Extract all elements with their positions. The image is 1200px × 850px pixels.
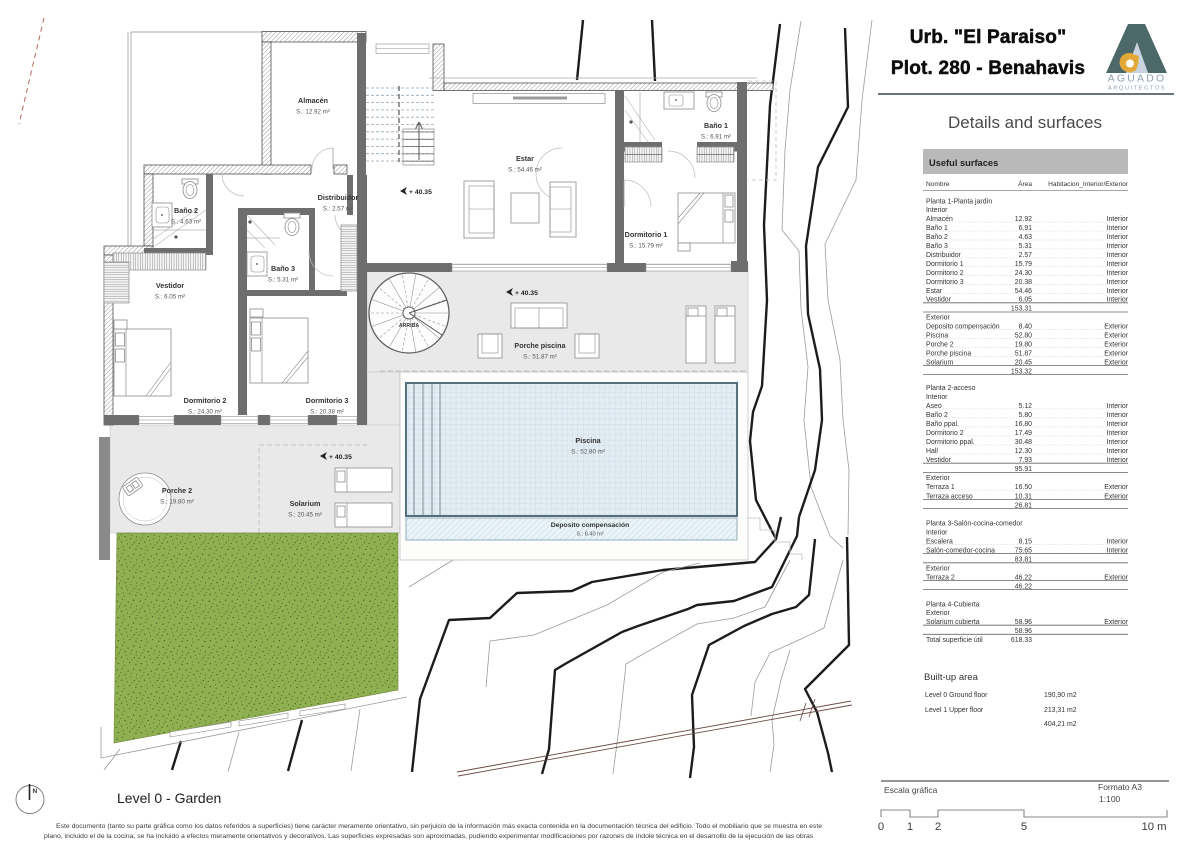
svg-text:Solarium cubierta: Solarium cubierta (926, 619, 980, 626)
svg-text:404,21 m2: 404,21 m2 (1044, 721, 1077, 728)
svg-text:Solarium: Solarium (926, 359, 953, 366)
svg-text:Interior: Interior (1107, 403, 1129, 410)
svg-text:Exterior: Exterior (926, 475, 950, 482)
svg-text:Porche 2: Porche 2 (162, 486, 192, 495)
svg-text:Porche piscina: Porche piscina (514, 341, 566, 350)
svg-text:10.31: 10.31 (1015, 493, 1032, 500)
svg-text:Interior: Interior (926, 207, 948, 214)
svg-text:+ 40.35: + 40.35 (329, 454, 352, 461)
svg-text:Vestidor: Vestidor (156, 281, 185, 290)
svg-text:Exterior: Exterior (1104, 484, 1128, 491)
svg-text:8.15: 8.15 (1019, 539, 1033, 546)
svg-text:plano, incluido el de la cocin: plano, incluido el de la cocina, se ha i… (44, 833, 814, 840)
svg-text:Área: Área (1018, 179, 1032, 188)
svg-text:Useful surfaces: Useful surfaces (929, 158, 998, 168)
svg-text:Level 0 Ground floor: Level 0 Ground floor (925, 692, 988, 699)
svg-text:0: 0 (878, 821, 884, 833)
svg-text:S.: 4.63 m²: S.: 4.63 m² (171, 219, 201, 226)
svg-text:Exterior: Exterior (926, 610, 950, 617)
svg-text:Baño ppal.: Baño ppal. (926, 421, 959, 428)
svg-text:58.96: 58.96 (1015, 619, 1032, 626)
svg-text:Level 1 Upper floor: Level 1 Upper floor (925, 707, 984, 714)
svg-text:S.: 2.57 m²: S.: 2.57 m² (323, 206, 353, 213)
svg-text:Almacén: Almacén (298, 96, 328, 105)
svg-text:30.48: 30.48 (1015, 439, 1032, 446)
svg-text:Distribuidor: Distribuidor (318, 193, 359, 202)
svg-text:Interior: Interior (1107, 448, 1129, 455)
svg-text:Exterior: Exterior (1104, 359, 1128, 366)
svg-text:Interior: Interior (1107, 539, 1129, 546)
svg-text:6.05: 6.05 (1019, 297, 1033, 304)
svg-text:20.45: 20.45 (1015, 359, 1032, 366)
svg-text:S.: 12.92 m²: S.: 12.92 m² (296, 109, 330, 116)
svg-text:Exterior: Exterior (1104, 333, 1128, 340)
svg-text:S.: 20.45 m²: S.: 20.45 m² (288, 512, 322, 519)
svg-text:Exterior: Exterior (926, 315, 950, 322)
svg-text:S.: 20.38 m²: S.: 20.38 m² (310, 409, 344, 416)
svg-text:Level 0 - Garden: Level 0 - Garden (117, 790, 221, 806)
svg-text:4.63: 4.63 (1019, 234, 1033, 241)
svg-text:46.22: 46.22 (1015, 574, 1032, 581)
svg-text:Interior: Interior (1107, 439, 1129, 446)
svg-text:Baño 2: Baño 2 (174, 206, 198, 215)
svg-text:Dormitorio 2: Dormitorio 2 (926, 270, 964, 277)
svg-text:Distribuidor: Distribuidor (926, 252, 962, 259)
svg-text:Exterior: Exterior (1104, 342, 1128, 349)
svg-text:Interior: Interior (926, 530, 948, 537)
svg-text:5.80: 5.80 (1019, 412, 1033, 419)
svg-text:54.46: 54.46 (1015, 288, 1032, 295)
svg-text:95.91: 95.91 (1015, 466, 1032, 473)
svg-text:S.: 51.87 m²: S.: 51.87 m² (523, 354, 557, 361)
svg-text:Porche 2: Porche 2 (926, 342, 954, 349)
svg-text:Planta 4-Cubierta: Planta 4-Cubierta (926, 601, 980, 608)
svg-text:15.79: 15.79 (1015, 261, 1032, 268)
svg-text:Plot. 280 - Benahavis: Plot. 280 - Benahavis (891, 58, 1085, 79)
svg-text:Exterior: Exterior (926, 565, 950, 572)
svg-text:Aseo: Aseo (926, 403, 942, 410)
svg-text:5.12: 5.12 (1019, 403, 1033, 410)
svg-text:Nombre: Nombre (926, 181, 950, 188)
svg-text:Exterior: Exterior (1104, 619, 1128, 626)
svg-text:618.33: 618.33 (1011, 637, 1032, 644)
svg-text:+ 40.35: + 40.35 (409, 189, 432, 196)
svg-text:Dormitorio 2: Dormitorio 2 (184, 396, 227, 405)
svg-text:S.: 19.80 m²: S.: 19.80 m² (160, 499, 194, 506)
svg-text:Baño 2: Baño 2 (926, 412, 948, 419)
svg-text:Interior: Interior (1107, 279, 1129, 286)
svg-text:10 m: 10 m (1141, 821, 1166, 833)
svg-text:51.87: 51.87 (1015, 350, 1032, 357)
svg-text:Interior: Interior (1107, 288, 1129, 295)
svg-text:213,31 m2: 213,31 m2 (1044, 707, 1077, 714)
svg-text:Baño 1: Baño 1 (704, 121, 728, 130)
svg-text:Interior: Interior (1107, 216, 1129, 223)
svg-text:Piscina: Piscina (926, 333, 948, 340)
svg-text:Interior: Interior (1107, 243, 1129, 250)
svg-text:5.31: 5.31 (1019, 243, 1033, 250)
svg-text:AGUADO: AGUADO (1108, 73, 1167, 85)
svg-text:Interior: Interior (1107, 457, 1129, 464)
svg-text:Dormitorio 3: Dormitorio 3 (306, 396, 349, 405)
svg-text:24.30: 24.30 (1015, 270, 1032, 277)
svg-text:Interior: Interior (1107, 270, 1129, 277)
svg-text:20.38: 20.38 (1015, 279, 1032, 286)
svg-text:S.: 6.91 m²: S.: 6.91 m² (701, 134, 731, 141)
svg-text:Este documento (tanto su parte: Este documento (tanto su parte gráfica c… (56, 823, 822, 830)
svg-text:S.: 6.05 m²: S.: 6.05 m² (155, 294, 185, 301)
svg-text:19.80: 19.80 (1015, 342, 1032, 349)
svg-text:Deposito compensación: Deposito compensación (551, 522, 630, 529)
svg-text:26.81: 26.81 (1015, 502, 1032, 509)
svg-text:Terraza 2: Terraza 2 (926, 574, 955, 581)
svg-text:1:100: 1:100 (1099, 794, 1121, 804)
svg-text:52.80: 52.80 (1015, 333, 1032, 340)
svg-text:S.: 24.30 m²: S.: 24.30 m² (188, 409, 222, 416)
svg-text:12.30: 12.30 (1015, 448, 1032, 455)
svg-text:Interior: Interior (1107, 252, 1129, 259)
svg-text:6.91: 6.91 (1019, 225, 1033, 232)
svg-text:16.80: 16.80 (1015, 421, 1032, 428)
svg-text:S.: 54.46 m²: S.: 54.46 m² (508, 167, 542, 174)
svg-text:Baño 2: Baño 2 (926, 234, 948, 241)
svg-text:S.: 15.79 m²: S.: 15.79 m² (629, 243, 663, 250)
svg-text:Terraza 1: Terraza 1 (926, 484, 955, 491)
svg-text:Almacén: Almacén (926, 216, 953, 223)
svg-text:Dormitorio ppal.: Dormitorio ppal. (926, 439, 975, 446)
svg-text:Planta 3-Salón-cocina-comedor: Planta 3-Salón-cocina-comedor (926, 521, 1023, 528)
svg-text:Estar: Estar (516, 154, 534, 163)
svg-text:Interior: Interior (1107, 548, 1129, 555)
svg-text:Interior: Interior (1107, 430, 1129, 437)
svg-text:153.31: 153.31 (1011, 306, 1032, 313)
svg-text:Exterior: Exterior (1104, 324, 1128, 331)
svg-text:Terraza acceso: Terraza acceso (926, 493, 973, 500)
svg-text:S.: 5.31 m²: S.: 5.31 m² (268, 277, 298, 284)
svg-text:Planta 2-acceso: Planta 2-acceso (926, 385, 976, 392)
svg-text:Deposito compensación: Deposito compensación (926, 324, 1000, 331)
svg-text:Escalera: Escalera (926, 539, 953, 546)
svg-text:16.50: 16.50 (1015, 484, 1032, 491)
svg-text:Interior: Interior (1107, 421, 1129, 428)
svg-text:Formato A3: Formato A3 (1098, 782, 1142, 792)
svg-text:Baño 3: Baño 3 (926, 243, 948, 250)
svg-text:S.: 8.40 m²: S.: 8.40 m² (576, 532, 603, 538)
svg-text:Dormitorio 1: Dormitorio 1 (926, 261, 964, 268)
svg-text:17.49: 17.49 (1015, 430, 1032, 437)
svg-text:Interior: Interior (1107, 412, 1129, 419)
svg-text:2.57: 2.57 (1019, 252, 1033, 259)
svg-text:Planta 1-Planta jardín: Planta 1-Planta jardín (926, 198, 992, 205)
svg-text:Baño 3: Baño 3 (271, 264, 295, 273)
svg-text:Piscina: Piscina (575, 436, 601, 445)
svg-text:8.40: 8.40 (1019, 324, 1033, 331)
svg-text:2: 2 (935, 821, 941, 833)
svg-text:75.65: 75.65 (1015, 548, 1032, 555)
svg-text:Baño 1: Baño 1 (926, 225, 948, 232)
svg-text:Porche piscina: Porche piscina (926, 350, 971, 357)
svg-text:ARQUITECTOS: ARQUITECTOS (1108, 86, 1166, 92)
svg-text:Details and surfaces: Details and surfaces (948, 113, 1102, 132)
svg-text:Interior: Interior (1107, 261, 1129, 268)
svg-text:+ 40.35: + 40.35 (515, 290, 538, 297)
svg-text:Escala gráfica: Escala gráfica (884, 785, 938, 795)
svg-text:Habitacion_Interior/Exterior: Habitacion_Interior/Exterior (1048, 181, 1129, 188)
svg-text:N: N (33, 788, 38, 795)
svg-text:Urb. "El Paraiso": Urb. "El Paraiso" (910, 27, 1067, 48)
svg-text:Exterior: Exterior (1104, 350, 1128, 357)
svg-text:Exterior: Exterior (1104, 493, 1128, 500)
svg-text:Exterior: Exterior (1104, 574, 1128, 581)
svg-text:12.92: 12.92 (1015, 216, 1032, 223)
svg-text:Interior: Interior (1107, 297, 1129, 304)
svg-text:190,90 m2: 190,90 m2 (1044, 692, 1077, 699)
svg-text:153.32: 153.32 (1011, 368, 1032, 375)
svg-text:Built-up area: Built-up area (924, 672, 979, 683)
svg-text:Interior: Interior (1107, 234, 1129, 241)
svg-text:ARRIBA: ARRIBA (399, 323, 419, 329)
svg-text:46.22: 46.22 (1015, 583, 1032, 590)
svg-text:Total superficie útil: Total superficie útil (926, 637, 983, 644)
svg-text:Interior: Interior (926, 394, 948, 401)
svg-text:Vestidor: Vestidor (926, 297, 952, 304)
svg-text:7.93: 7.93 (1019, 457, 1033, 464)
svg-text:1: 1 (907, 821, 913, 833)
svg-text:Dormitorio 3: Dormitorio 3 (926, 279, 964, 286)
svg-text:S.: 52.80 m²: S.: 52.80 m² (571, 449, 605, 456)
svg-text:83.81: 83.81 (1015, 557, 1032, 564)
svg-text:58.96: 58.96 (1015, 628, 1032, 635)
svg-text:5: 5 (1021, 821, 1027, 833)
svg-text:Dormitorio 2: Dormitorio 2 (926, 430, 964, 437)
svg-text:Solarium: Solarium (290, 499, 321, 508)
svg-text:Salón-comedor-cocina: Salón-comedor-cocina (926, 548, 995, 555)
svg-text:Hall: Hall (926, 448, 938, 455)
svg-text:Interior: Interior (1107, 225, 1129, 232)
svg-text:Vestidor: Vestidor (926, 457, 952, 464)
svg-text:Estar: Estar (926, 288, 943, 295)
svg-text:Dormitorio 1: Dormitorio 1 (625, 230, 668, 239)
